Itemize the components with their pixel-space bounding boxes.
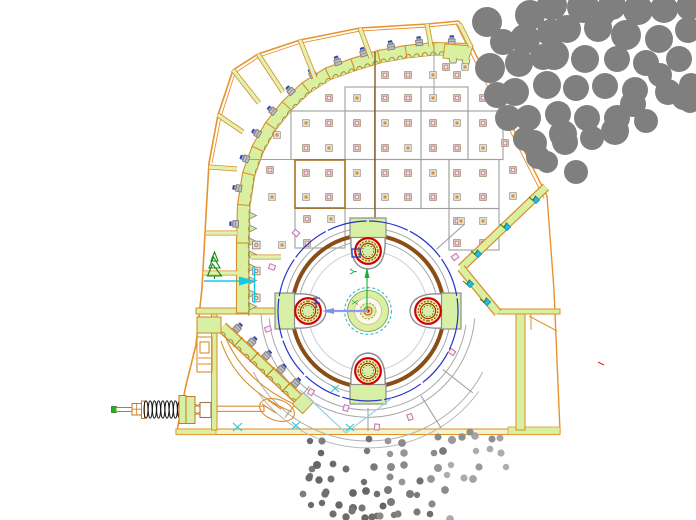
svg-text:X: X [351,299,360,305]
svg-text:Y: Y [349,268,360,275]
